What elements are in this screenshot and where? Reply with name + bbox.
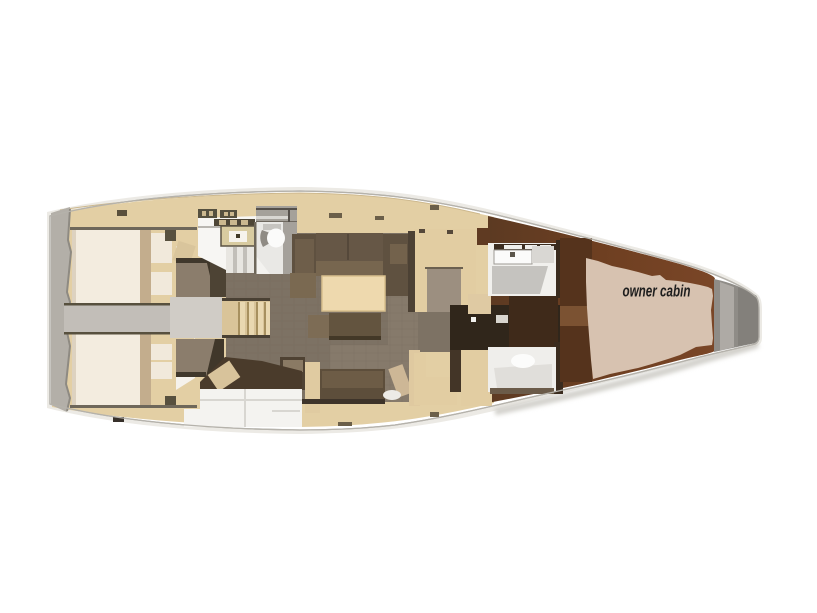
svg-text:owner cabin: owner cabin (623, 283, 691, 301)
